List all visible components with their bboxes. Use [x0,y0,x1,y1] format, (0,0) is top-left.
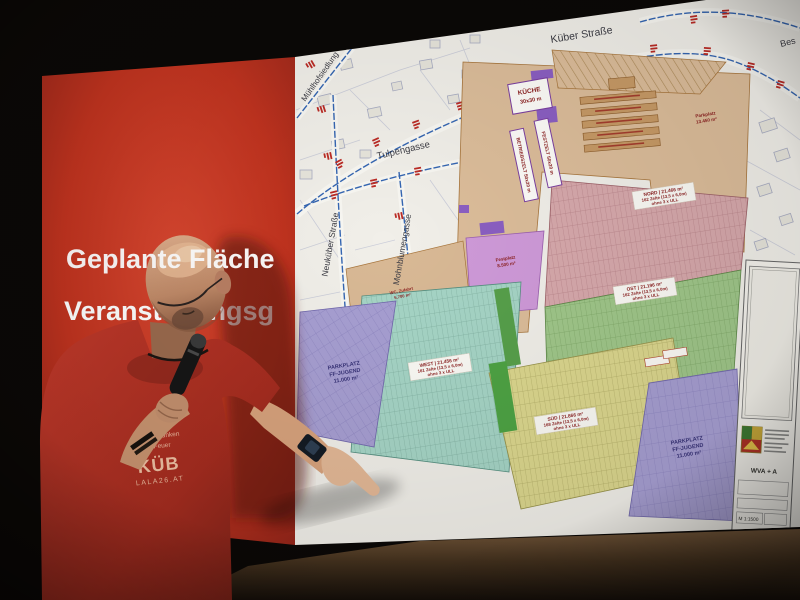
vignette-overlay [0,0,800,600]
photo-canvas: Veranstaltungsg [0,0,800,600]
presentation-photo: Veranstaltungsg [0,0,800,600]
